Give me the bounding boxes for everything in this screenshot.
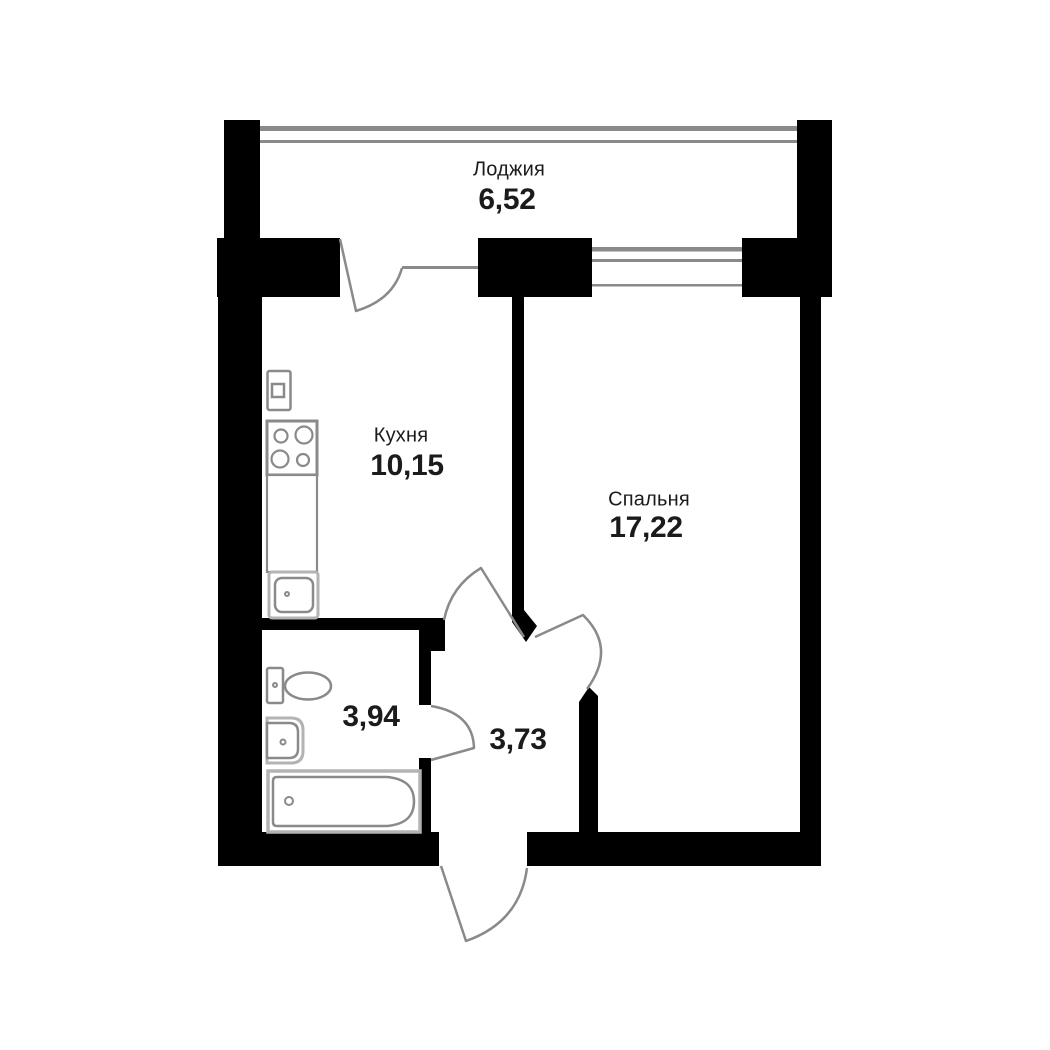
loggia-glazing-line-1 (260, 126, 797, 131)
washing-machine-icon (268, 371, 291, 410)
wall-bottom-right (527, 832, 821, 866)
wall-kitchen-bottom (262, 618, 445, 630)
wall-bedroom-hallway (579, 687, 598, 832)
wall-bathroom-right-upper (419, 630, 431, 705)
kitchen-sink-icon (269, 572, 318, 618)
toilet-icon (267, 668, 331, 703)
bedroom-door (535, 615, 601, 689)
floor-plan-drawing (0, 0, 1050, 1050)
room-area-hallway: 3,73 (489, 723, 546, 757)
room-area-kitchen: 10,15 (370, 449, 444, 483)
room-name-kitchen: Кухня (374, 425, 429, 448)
wall-top-left-block (217, 238, 340, 297)
loggia-glazing-line-2 (260, 140, 797, 143)
countertop-icon (267, 475, 317, 572)
bathroom-sink-icon (267, 718, 303, 763)
bedroom-window-line-1 (592, 247, 742, 252)
room-name-bedroom: Спальня (608, 489, 690, 512)
room-name-loggia: Лоджия (473, 159, 545, 182)
stove-icon (267, 421, 317, 475)
wall-outer-left (218, 297, 262, 866)
floor-plan: Лоджия 6,52 Кухня 10,15 Спальня 17,22 3,… (0, 0, 1050, 1050)
wall-outer-right (800, 297, 821, 866)
bathroom-door (431, 706, 474, 760)
room-area-bedroom: 17,22 (609, 511, 683, 545)
bathtub-icon (268, 771, 420, 832)
wall-top-mid-block (478, 238, 592, 297)
wall-loggia-right (797, 120, 832, 238)
bedroom-window-line-2 (592, 259, 742, 262)
room-area-bathroom: 3,94 (342, 700, 399, 734)
loggia-door (340, 239, 402, 311)
loggia-door-opening-line (402, 266, 478, 269)
bedroom-window-line-3 (592, 284, 742, 287)
room-area-loggia: 6,52 (478, 183, 535, 217)
wall-top-right-block (742, 238, 832, 297)
wall-bottom-left (218, 832, 439, 866)
wall-loggia-left (224, 120, 260, 238)
wall-kitchen-bedroom-divider (512, 297, 537, 642)
entrance-door (441, 866, 527, 941)
